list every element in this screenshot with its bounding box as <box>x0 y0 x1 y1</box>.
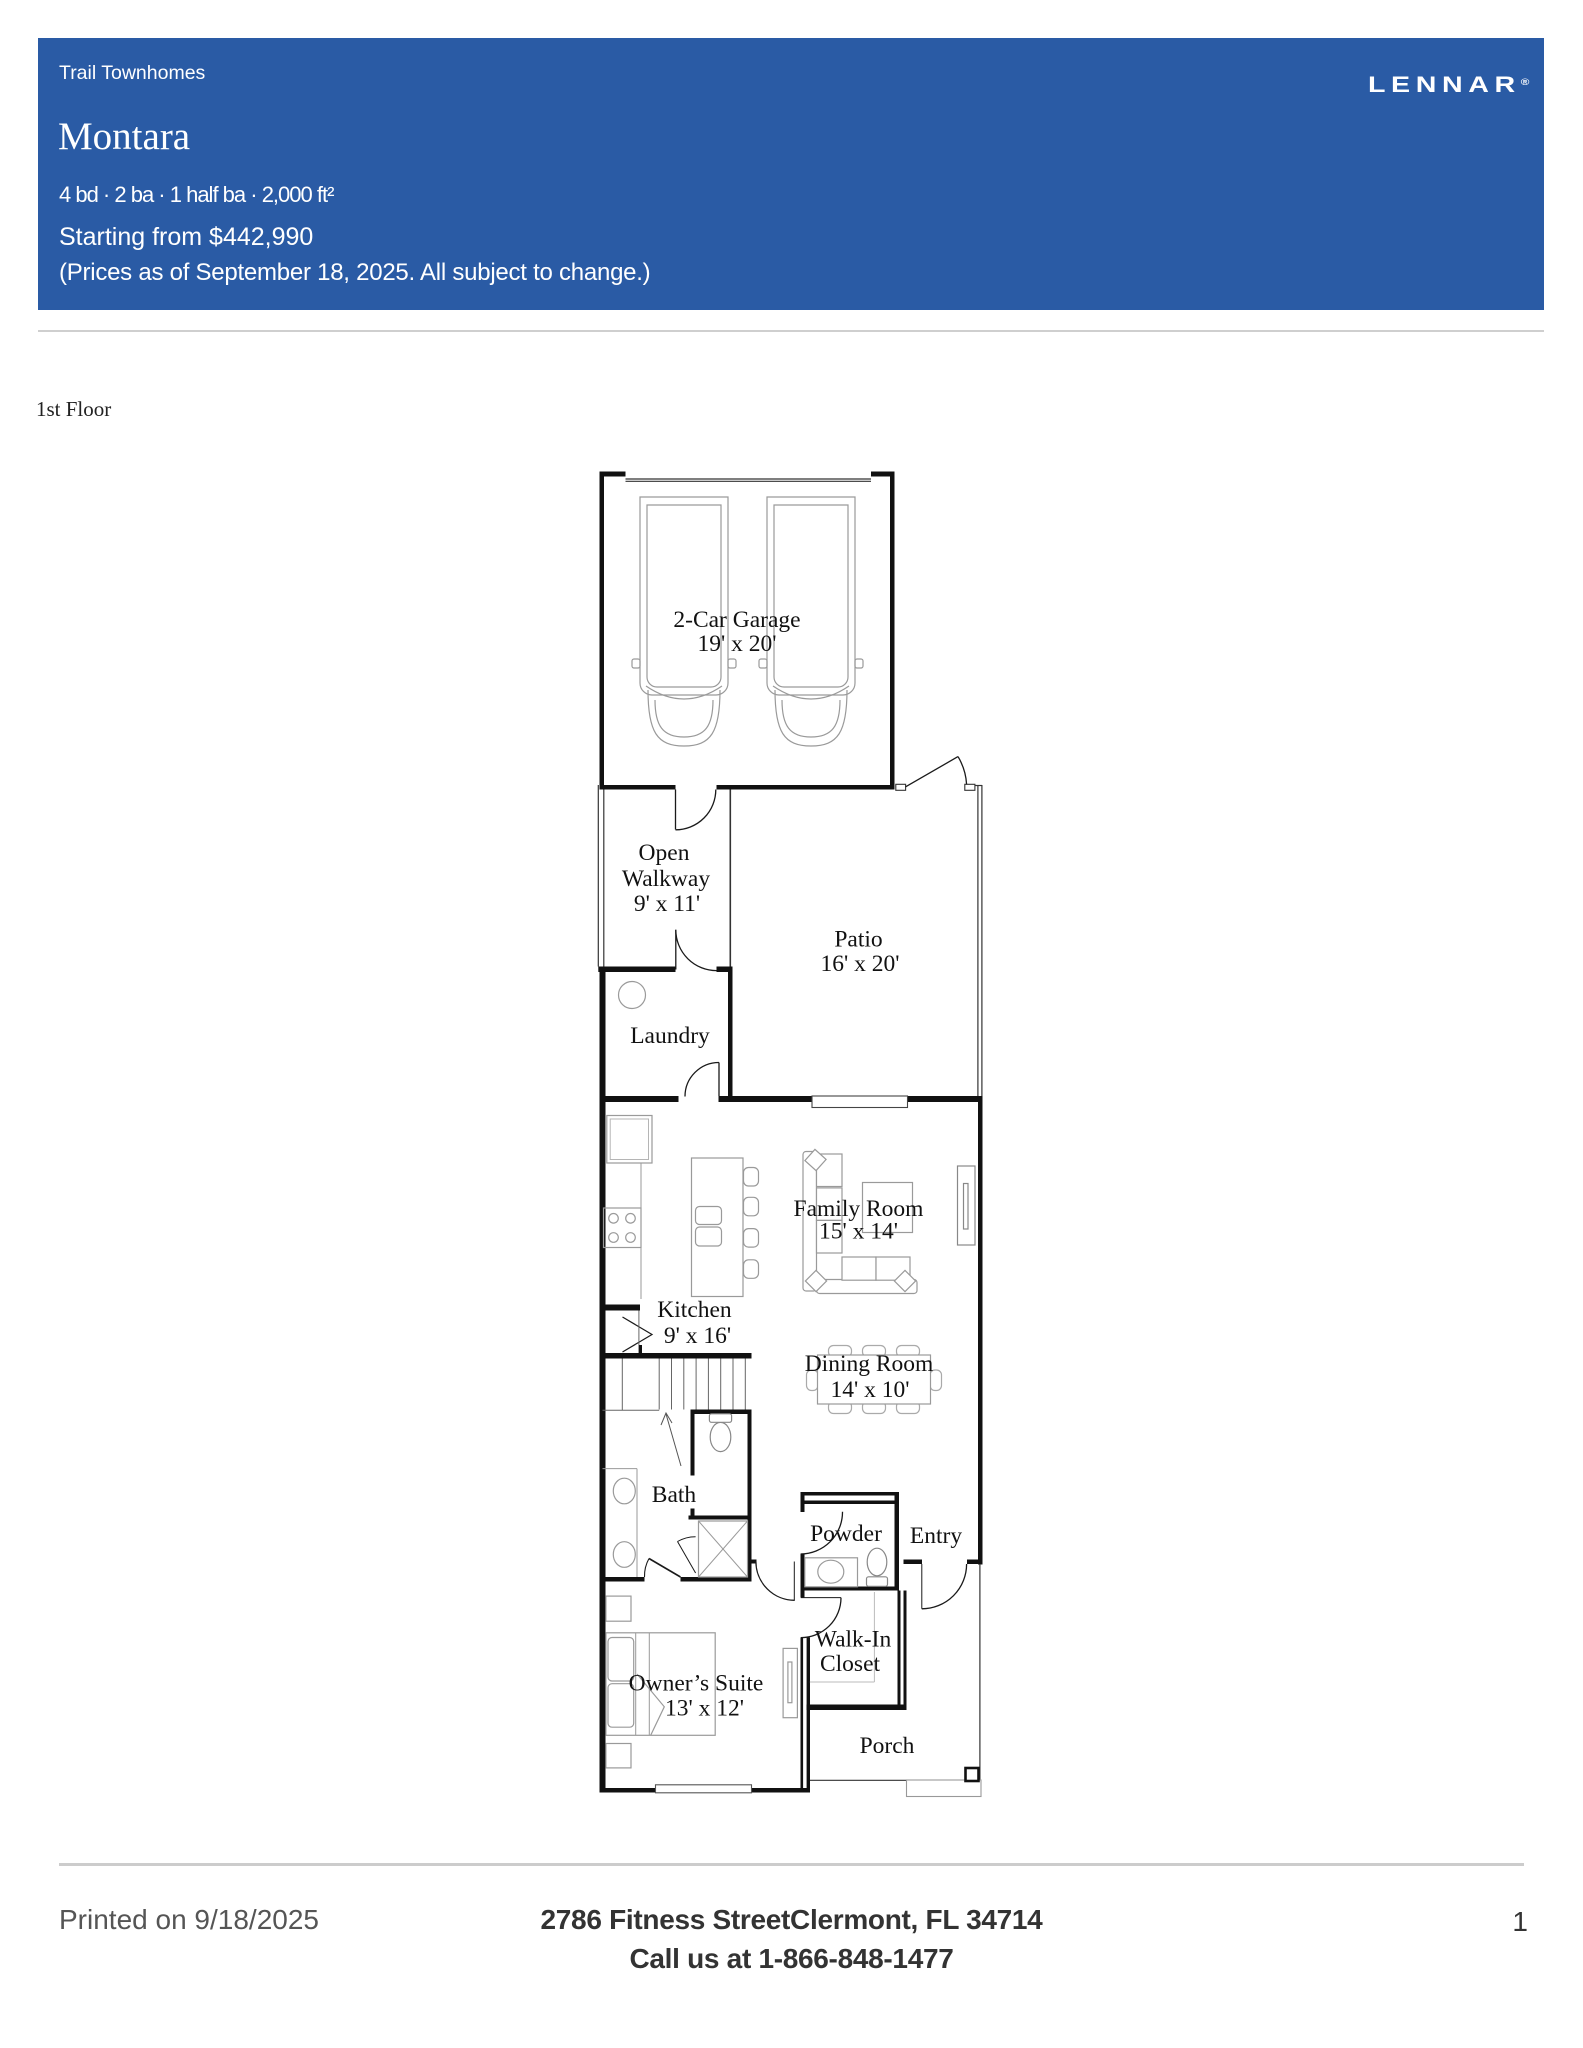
svg-text:13' x 12': 13' x 12' <box>665 1696 744 1722</box>
svg-text:9' x 11': 9' x 11' <box>634 891 700 917</box>
svg-text:2-Car Garage: 2-Car Garage <box>673 607 800 633</box>
svg-text:14' x 10': 14' x 10' <box>831 1377 910 1403</box>
svg-text:16' x 20': 16' x 20' <box>821 951 900 977</box>
svg-text:15' x 14': 15' x 14' <box>819 1219 898 1245</box>
svg-text:Patio: Patio <box>834 927 882 953</box>
svg-text:Owner’s Suite: Owner’s Suite <box>629 1671 764 1697</box>
svg-text:Bath: Bath <box>652 1482 697 1508</box>
svg-text:Open: Open <box>639 840 690 866</box>
svg-text:Kitchen: Kitchen <box>657 1297 732 1323</box>
svg-text:9' x 16': 9' x 16' <box>664 1323 731 1349</box>
svg-text:19' x 20': 19' x 20' <box>698 631 777 657</box>
svg-text:Closet: Closet <box>820 1651 881 1677</box>
svg-text:Laundry: Laundry <box>630 1023 710 1049</box>
svg-text:Dining Room: Dining Room <box>805 1351 934 1377</box>
svg-text:Walkway: Walkway <box>622 866 710 892</box>
svg-text:Porch: Porch <box>860 1733 915 1759</box>
svg-text:Walk-In: Walk-In <box>815 1627 892 1653</box>
svg-text:Powder: Powder <box>810 1521 882 1547</box>
svg-text:Entry: Entry <box>910 1523 962 1549</box>
